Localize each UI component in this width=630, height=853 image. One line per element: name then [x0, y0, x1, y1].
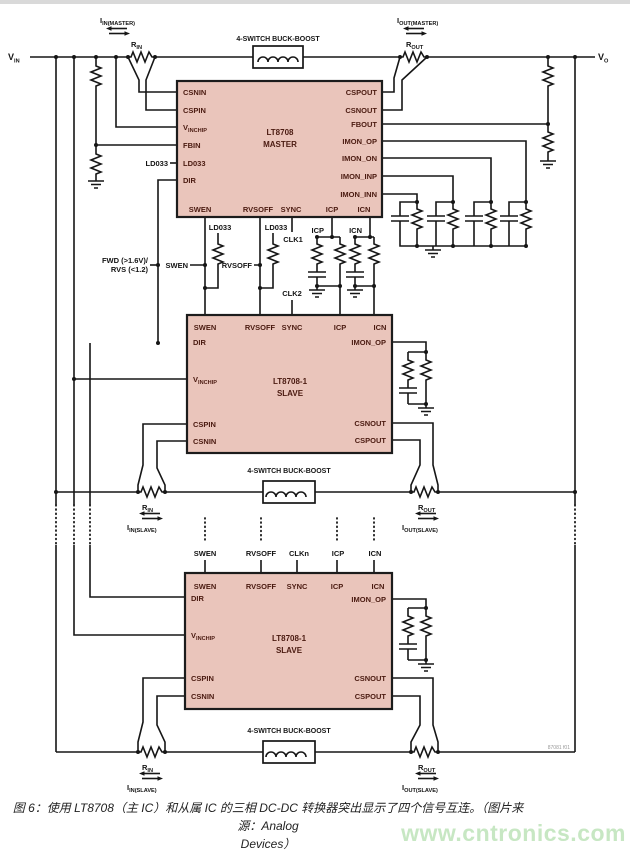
pin-fbout: FBOUT	[351, 120, 377, 129]
buck-boost-slave2: 4-SWITCH BUCK-BOOST	[247, 728, 331, 763]
watermark: www.cntronics.com	[401, 820, 626, 847]
vin-label: VIN	[8, 52, 20, 65]
pin-imon-inn: IMON_INN	[340, 190, 377, 199]
icn-slave2-label: ICN	[369, 549, 382, 558]
pin-imon-on: IMON_ON	[342, 154, 377, 163]
pin-cspin: CSPIN	[193, 420, 216, 429]
pin-icp: ICP	[331, 582, 344, 591]
master-chip-name: LT8708	[267, 128, 295, 137]
buck-boost-label: 4-SWITCH BUCK-BOOST	[247, 468, 331, 475]
pin-swen: SWEN	[189, 205, 212, 214]
vo-label: VO	[598, 52, 609, 65]
ld033-pullup2-label: LD033	[265, 223, 288, 232]
vinchip-bus	[74, 57, 187, 635]
rvsoff-net-label: RVSOFF	[222, 261, 253, 270]
pin-csnin: CSNIN	[193, 437, 216, 446]
pin-imon-op: IMON_OP	[351, 595, 386, 604]
rvsoff-slave2-label: RVSOFF	[246, 549, 277, 558]
icp-net-label: ICP	[311, 226, 324, 235]
clk2-label: CLK2	[282, 289, 302, 298]
slave2-chip-role: SLAVE	[276, 646, 303, 655]
master-output-kelvin	[382, 57, 427, 110]
ld033-pullup1-label: LD033	[209, 223, 232, 232]
pin-rvsoff: RVSOFF	[243, 205, 274, 214]
pin-sync: SYNC	[287, 582, 308, 591]
pin-icn: ICN	[358, 205, 371, 214]
dir-bus	[90, 343, 185, 597]
pin-icp: ICP	[334, 323, 347, 332]
slave2-output-kelvin	[392, 678, 438, 752]
pin-rvsoff: RVSOFF	[246, 582, 277, 591]
rout-master-label: ROUT	[406, 40, 424, 51]
top-border	[0, 0, 630, 4]
pin-icn: ICN	[374, 323, 387, 332]
slave2-chip: LT8708-1 SLAVE SWEN RVSOFF SYNC ICP ICN …	[185, 573, 392, 709]
pin-imon-op: IMON_OP	[342, 137, 377, 146]
slave2-imonop-network	[392, 599, 426, 664]
icp-slave2-label: ICP	[332, 549, 345, 558]
pin-cspin: CSPIN	[183, 106, 206, 115]
pin-dir: DIR	[193, 338, 207, 347]
pin-csnout: CSNOUT	[354, 674, 386, 683]
buck-boost-master: 4-SWITCH BUCK-BOOST	[236, 36, 320, 68]
ld033-ext-label: LD033	[145, 159, 168, 168]
pin-dir: DIR	[191, 594, 205, 603]
rin-master-label: RIN	[131, 40, 142, 51]
pin-fbin: FBIN	[183, 141, 201, 150]
pin-cspout: CSPOUT	[346, 88, 378, 97]
master-chip-role: MASTER	[263, 140, 297, 149]
slave1-output-kelvin	[392, 423, 438, 492]
iout-slave1-label: IOUT(SLAVE)	[402, 523, 438, 534]
pin-sync: SYNC	[282, 323, 303, 332]
bus-continuation-dots	[56, 505, 575, 545]
slave2-signal-stubs	[205, 560, 374, 573]
iout-master-label: IOUT(MASTER)	[397, 16, 438, 27]
slave2-input-kelvin	[138, 678, 185, 752]
fwd-label-line2: RVS (<1.2)	[111, 265, 149, 274]
pin-rvsoff: RVSOFF	[245, 323, 276, 332]
pin-cspin: CSPIN	[191, 674, 214, 683]
pin-csnout: CSNOUT	[345, 106, 377, 115]
slave1-chip: LT8708-1 SLAVE SWEN RVSOFF SYNC ICP ICN …	[187, 315, 392, 453]
pin-csnin: CSNIN	[191, 692, 214, 701]
pin-imon-op: IMON_OP	[351, 338, 386, 347]
swen-net-label: SWEN	[166, 261, 189, 270]
pin-cspout: CSPOUT	[355, 436, 387, 445]
iin-slave2-label: IIN(SLAVE)	[127, 783, 157, 794]
pin-cspout: CSPOUT	[355, 692, 387, 701]
master-input-kelvin	[128, 57, 177, 110]
slave2-chip-name: LT8708-1	[272, 634, 307, 643]
slave1-input-kelvin	[138, 424, 187, 492]
pin-imon-inp: IMON_INP	[341, 172, 377, 181]
fwd-label-line1: FWD (>1.6V)/	[102, 256, 149, 265]
pin-csnin: CSNIN	[183, 88, 206, 97]
iout-slave2-label: IOUT(SLAVE)	[402, 783, 438, 794]
iin-slave1-label: IIN(SLAVE)	[127, 523, 157, 534]
schematic-svg: 4-SWITCH BUCK-BOOST 4-SWITCH BUCK-BOOST …	[0, 0, 630, 795]
imon-wires	[382, 141, 526, 202]
pin-swen: SWEN	[194, 323, 217, 332]
slave1-chip-name: LT8708-1	[273, 377, 308, 386]
slave1-imonop-network	[392, 342, 426, 408]
pin-ld033: LD033	[183, 159, 206, 168]
master-chip: LT8708 MASTER CSNIN CSPIN VINCHIP FBIN L…	[177, 81, 382, 217]
rail-labels: VIN VO	[8, 52, 609, 65]
pin-icp: ICP	[326, 205, 339, 214]
swen-slave2-label: SWEN	[194, 549, 217, 558]
rout-slave2-label: ROUT	[418, 763, 436, 774]
pin-swen: SWEN	[194, 582, 217, 591]
buck-boost-label: 4-SWITCH BUCK-BOOST	[236, 36, 320, 43]
buck-boost-label: 4-SWITCH BUCK-BOOST	[247, 728, 331, 735]
clkn-label: CLKn	[289, 549, 309, 558]
pin-icn: ICN	[372, 582, 385, 591]
buck-boost-slave1: 4-SWITCH BUCK-BOOST	[247, 468, 331, 503]
icn-net-label: ICN	[349, 226, 362, 235]
pin-csnout: CSNOUT	[354, 419, 386, 428]
fbout-divider	[382, 57, 548, 161]
figure-code: 87081 f01	[548, 745, 570, 751]
slave2-signal-dots	[205, 518, 374, 542]
iin-master-label: IIN(MASTER)	[100, 16, 135, 27]
pin-dir: DIR	[183, 176, 197, 185]
slave1-chip-role: SLAVE	[277, 389, 304, 398]
caption-line2: Devices）	[241, 837, 296, 851]
pin-sync: SYNC	[281, 205, 302, 214]
rout-slave1-label: ROUT	[418, 503, 436, 514]
clk1-label: CLK1	[283, 235, 303, 244]
